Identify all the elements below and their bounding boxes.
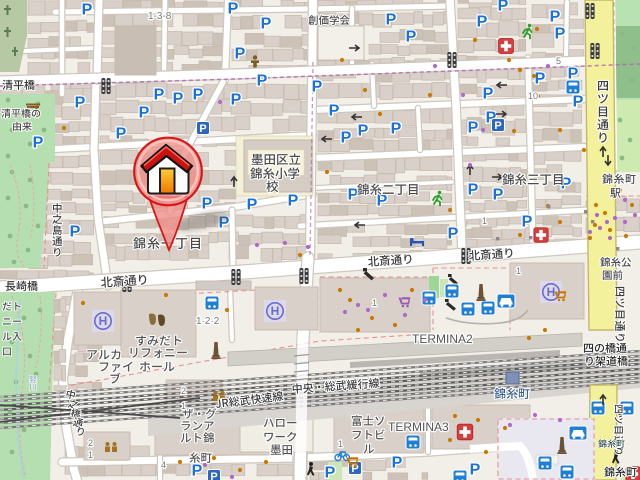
svg-text:P: P: [247, 197, 258, 214]
svg-text:H: H: [99, 314, 108, 328]
svg-text:P: P: [70, 224, 81, 241]
svg-text:P: P: [358, 123, 369, 140]
svg-text:H: H: [547, 285, 556, 299]
svg-text:P: P: [288, 193, 299, 210]
svg-text:P: P: [202, 196, 213, 213]
svg-text:P: P: [468, 182, 479, 199]
svg-text:P: P: [522, 214, 533, 231]
svg-text:1·2·2: 1·2·2: [196, 316, 220, 327]
svg-text:1: 1: [88, 450, 93, 460]
svg-text:P: P: [341, 130, 352, 147]
svg-text:P: P: [210, 471, 217, 480]
svg-text:P: P: [573, 94, 584, 111]
svg-text:P: P: [386, 12, 397, 29]
svg-text:P: P: [82, 2, 93, 19]
svg-text:1: 1: [482, 216, 487, 226]
svg-text:P: P: [312, 79, 323, 96]
svg-text:1: 1: [181, 401, 186, 411]
svg-text:P: P: [173, 91, 184, 108]
svg-text:P: P: [392, 455, 403, 472]
svg-text:1-3-8: 1-3-8: [148, 11, 172, 22]
svg-text:P: P: [329, 103, 340, 120]
svg-text:P: P: [493, 187, 504, 204]
svg-text:P: P: [535, 71, 546, 88]
svg-text:P: P: [235, 46, 246, 63]
svg-text:P: P: [555, 26, 566, 43]
svg-text:P: P: [448, 226, 459, 243]
svg-text:5: 5: [556, 56, 561, 66]
svg-text:1: 1: [372, 298, 377, 308]
svg-text:P: P: [154, 87, 165, 104]
svg-text:P: P: [139, 105, 150, 122]
svg-text:P: P: [75, 95, 86, 112]
svg-text:P: P: [193, 87, 204, 104]
svg-text:P: P: [550, 9, 561, 26]
svg-text:2: 2: [181, 386, 186, 396]
svg-text:P: P: [494, 120, 501, 132]
svg-text:P: P: [406, 29, 417, 46]
svg-text:P: P: [261, 16, 272, 33]
svg-text:P: P: [477, 14, 488, 31]
svg-text:2: 2: [88, 438, 93, 448]
svg-text:P: P: [33, 135, 44, 152]
svg-text:P: P: [483, 86, 494, 103]
svg-text:P: P: [468, 120, 479, 137]
svg-text:P: P: [391, 121, 402, 138]
svg-text:TERMINA3: TERMINA3: [388, 420, 449, 434]
svg-text:H: H: [271, 304, 280, 318]
svg-text:P: P: [231, 92, 242, 109]
svg-text:P: P: [325, 465, 336, 480]
svg-text:1: 1: [338, 439, 343, 449]
svg-text:P: P: [116, 126, 127, 143]
svg-text:P: P: [257, 73, 268, 90]
svg-text:P: P: [351, 463, 358, 475]
svg-text:P: P: [498, 0, 509, 15]
svg-text:P: P: [470, 462, 481, 479]
svg-text:P: P: [199, 123, 206, 135]
svg-text:P: P: [377, 193, 388, 210]
svg-text:P: P: [192, 463, 203, 480]
svg-text:4: 4: [161, 460, 166, 470]
svg-text:1: 1: [516, 266, 521, 276]
svg-text:P: P: [228, 1, 239, 18]
svg-text:10: 10: [528, 91, 538, 101]
svg-text:TERMINA2: TERMINA2: [412, 332, 473, 346]
